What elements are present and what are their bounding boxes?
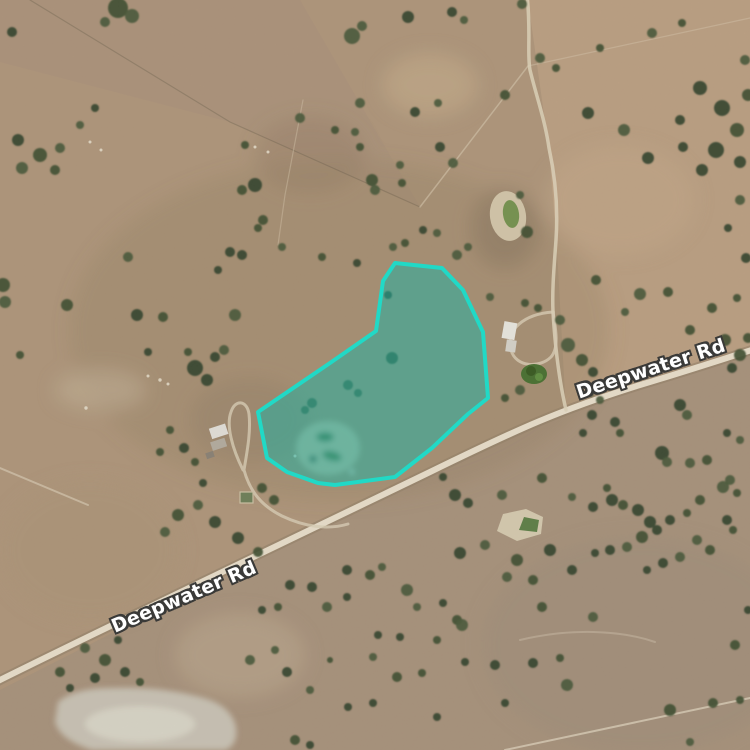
satellite-map[interactable]: Deepwater Rd Deepwater Rd <box>0 0 750 750</box>
aerial-imagery <box>0 0 750 750</box>
